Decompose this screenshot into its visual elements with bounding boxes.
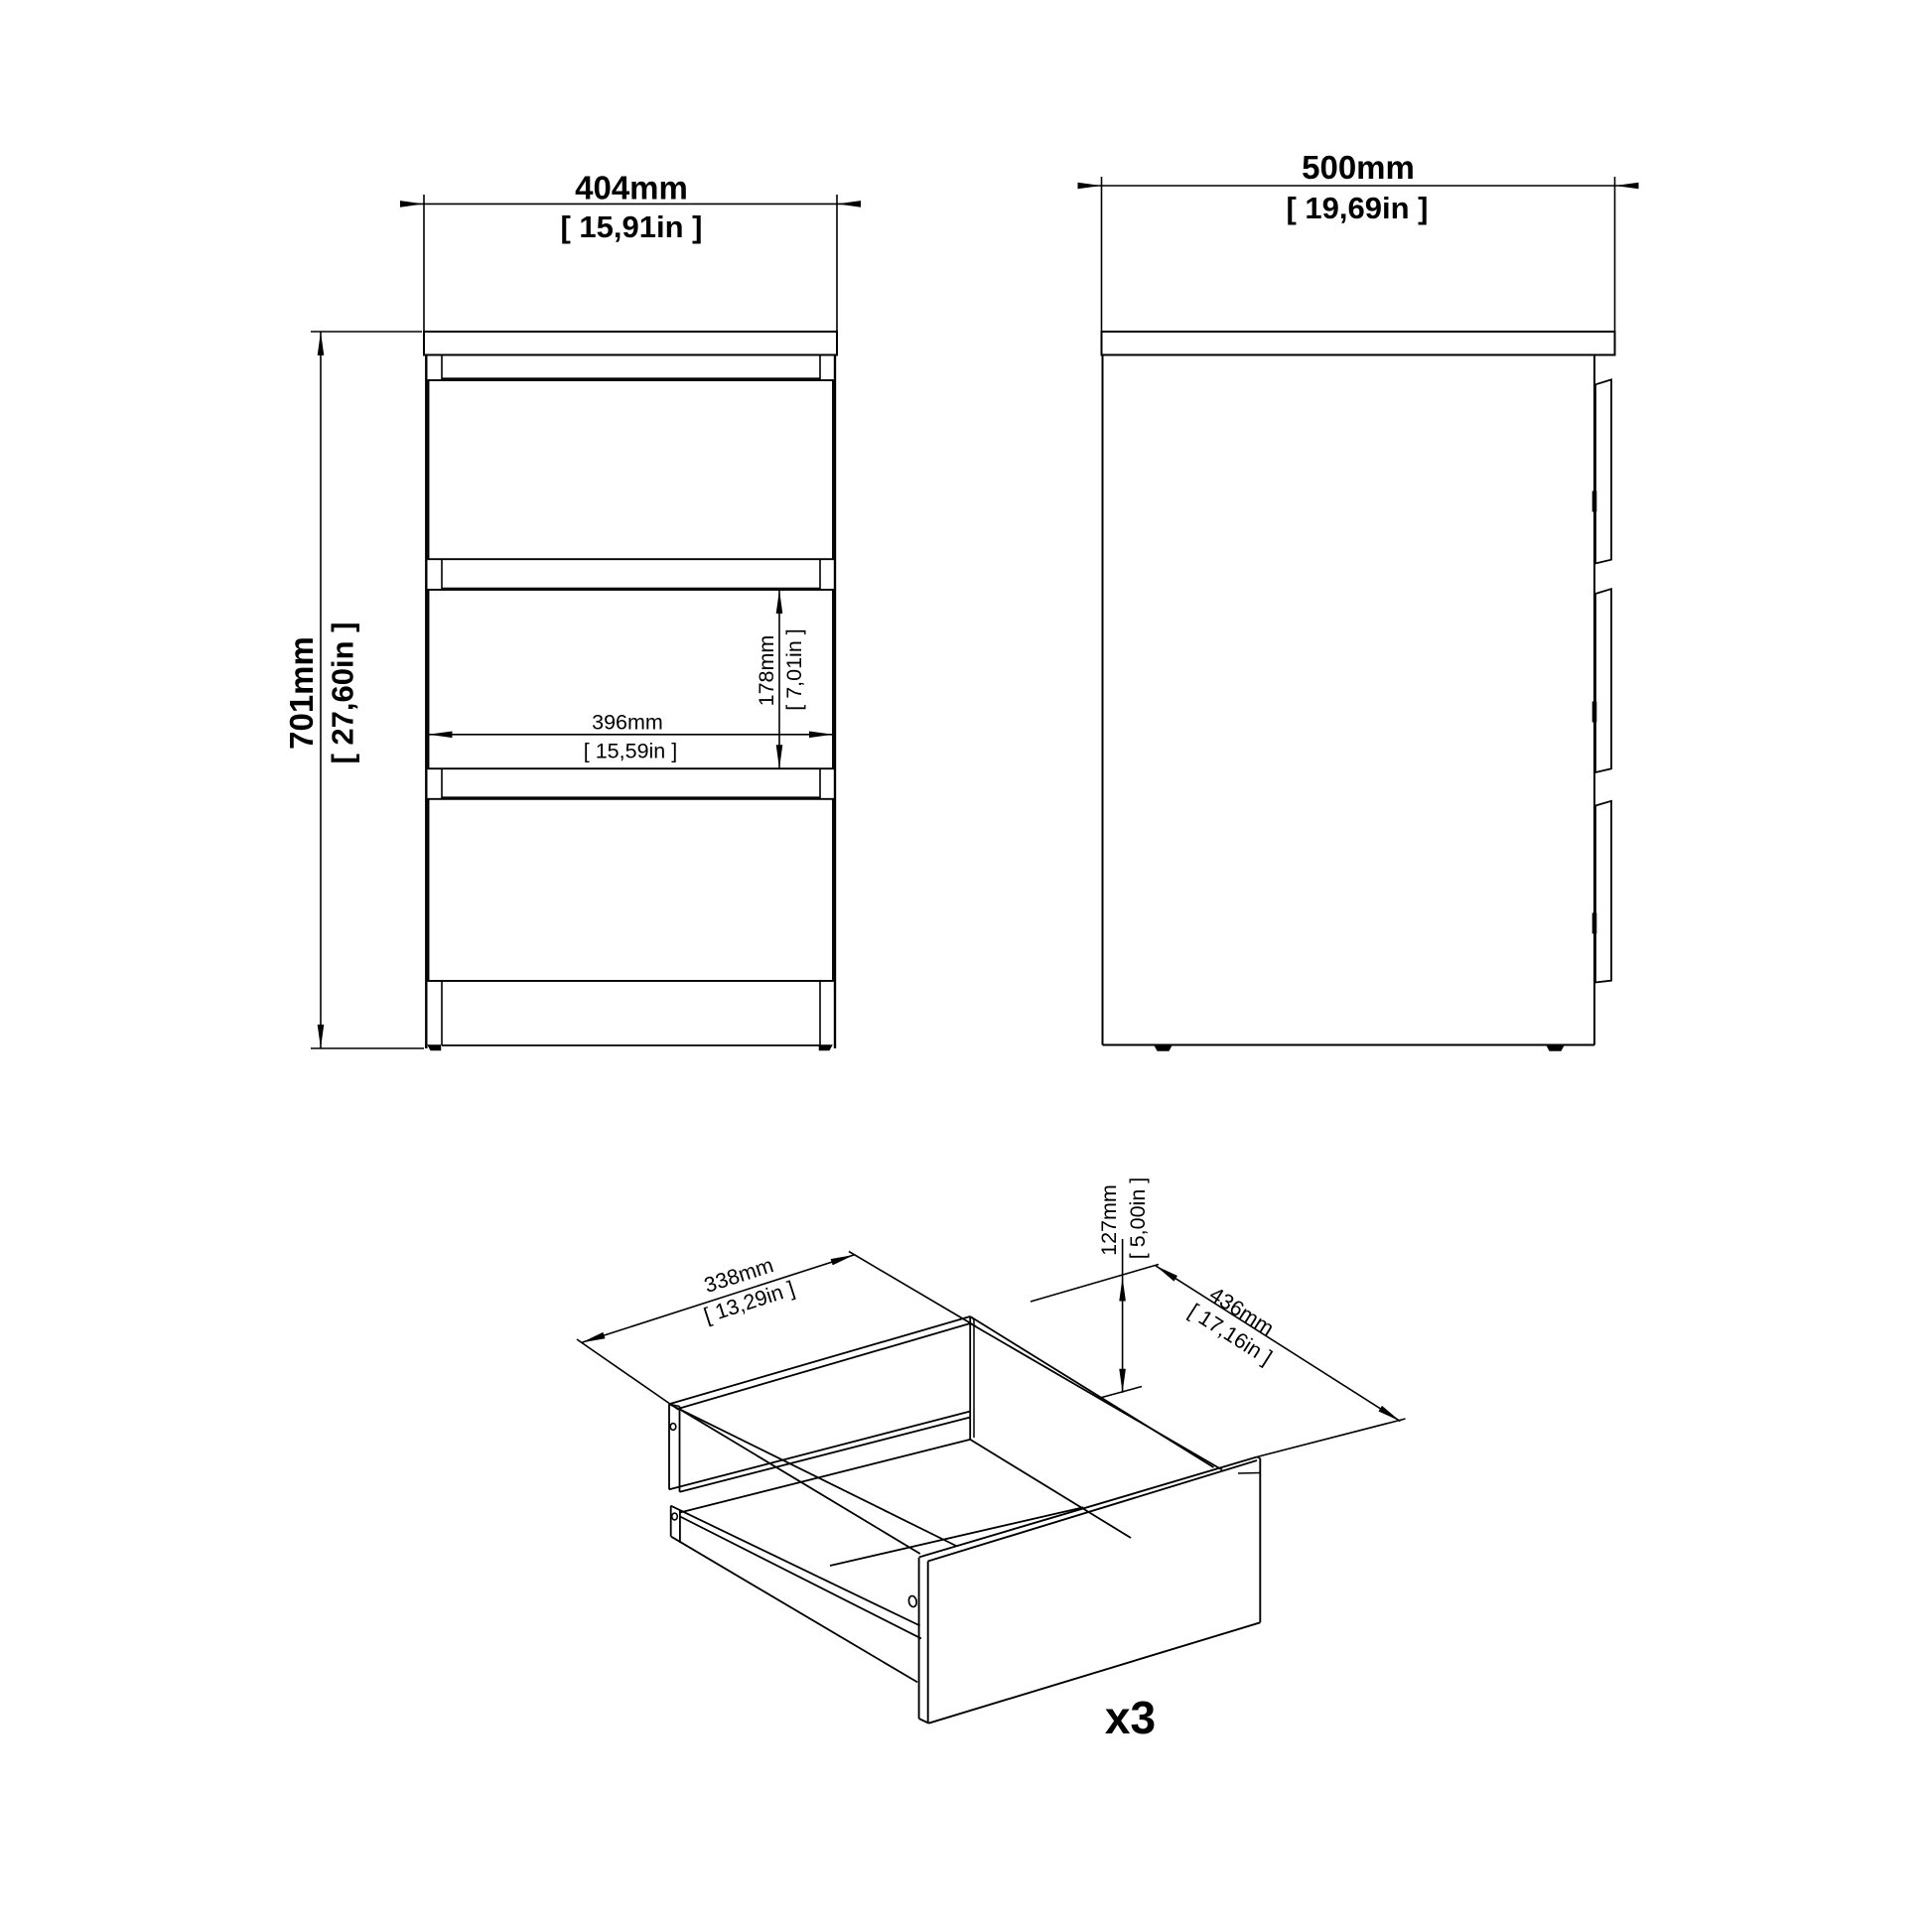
svg-text:[ 5,00in ]: [ 5,00in ] [1126, 1177, 1150, 1259]
svg-text:178mm: 178mm [755, 635, 778, 707]
svg-text:127mm: 127mm [1097, 1184, 1121, 1256]
svg-text:[ 15,59in ]: [ 15,59in ] [584, 740, 677, 763]
svg-text:396mm: 396mm [592, 711, 663, 735]
svg-text:x3: x3 [1105, 1692, 1156, 1743]
svg-text:404mm: 404mm [575, 170, 688, 207]
svg-text:[ 27,60in ]: [ 27,60in ] [326, 622, 360, 764]
svg-text:[ 19,69in ]: [ 19,69in ] [1287, 191, 1429, 225]
svg-text:[ 15,91in ]: [ 15,91in ] [561, 209, 703, 244]
svg-text:[ 7,01in ]: [ 7,01in ] [782, 628, 806, 710]
svg-text:701mm: 701mm [283, 636, 320, 750]
svg-text:500mm: 500mm [1302, 149, 1415, 186]
